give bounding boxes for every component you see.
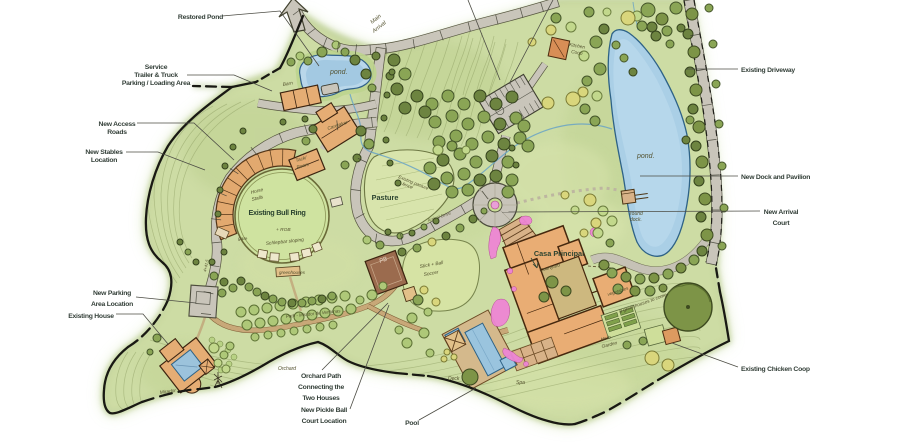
svg-text:Deck: Deck: [448, 376, 460, 382]
svg-text:dock.: dock.: [630, 217, 642, 223]
svg-text:Court: Court: [773, 220, 791, 227]
svg-text:Area Location: Area Location: [91, 301, 133, 308]
svg-text:Existing House: Existing House: [68, 313, 114, 320]
svg-text:Spa: Spa: [516, 380, 525, 386]
svg-text:New Pickle Ball: New Pickle Ball: [301, 407, 347, 414]
svg-text:gate: gate: [238, 236, 248, 242]
svg-text:New Parking: New Parking: [93, 290, 131, 297]
svg-text:Existing Chicken Coop: Existing Chicken Coop: [741, 366, 810, 373]
svg-text:Existing Bull Ring: Existing Bull Ring: [248, 208, 305, 217]
svg-text:Connecting the: Connecting the: [298, 384, 344, 391]
svg-text:Roads: Roads: [107, 129, 127, 136]
svg-text:New Arrival: New Arrival: [764, 209, 799, 216]
svg-text:Location: Location: [91, 157, 117, 164]
svg-text:Pool: Pool: [405, 420, 419, 427]
svg-text:Service: Service: [145, 64, 168, 71]
svg-text:New Dock and Pavilion: New Dock and Pavilion: [741, 174, 810, 181]
svg-text:Restored Pond: Restored Pond: [178, 14, 223, 21]
svg-text:New Stables: New Stables: [85, 149, 123, 156]
svg-text:New Access: New Access: [99, 121, 136, 128]
svg-text:Casa Principal: Casa Principal: [534, 249, 584, 258]
svg-text:greenhouses: greenhouses: [279, 270, 306, 275]
svg-text:Existing Driveway: Existing Driveway: [741, 67, 795, 74]
svg-text:+ ROB: + ROB: [276, 227, 291, 233]
svg-text:pond.: pond.: [329, 69, 348, 76]
svg-text:Orchard Path: Orchard Path: [301, 373, 341, 380]
svg-text:Trailer & Truck: Trailer & Truck: [134, 72, 178, 79]
svg-text:Pasture: Pasture: [372, 193, 399, 202]
svg-text:Parking / Loading Area: Parking / Loading Area: [122, 80, 191, 87]
svg-text:pond.: pond.: [636, 153, 655, 160]
svg-text:Court Location: Court Location: [302, 418, 347, 425]
svg-text:Orchard: Orchard: [278, 366, 296, 372]
svg-text:Two Houses: Two Houses: [302, 395, 339, 402]
